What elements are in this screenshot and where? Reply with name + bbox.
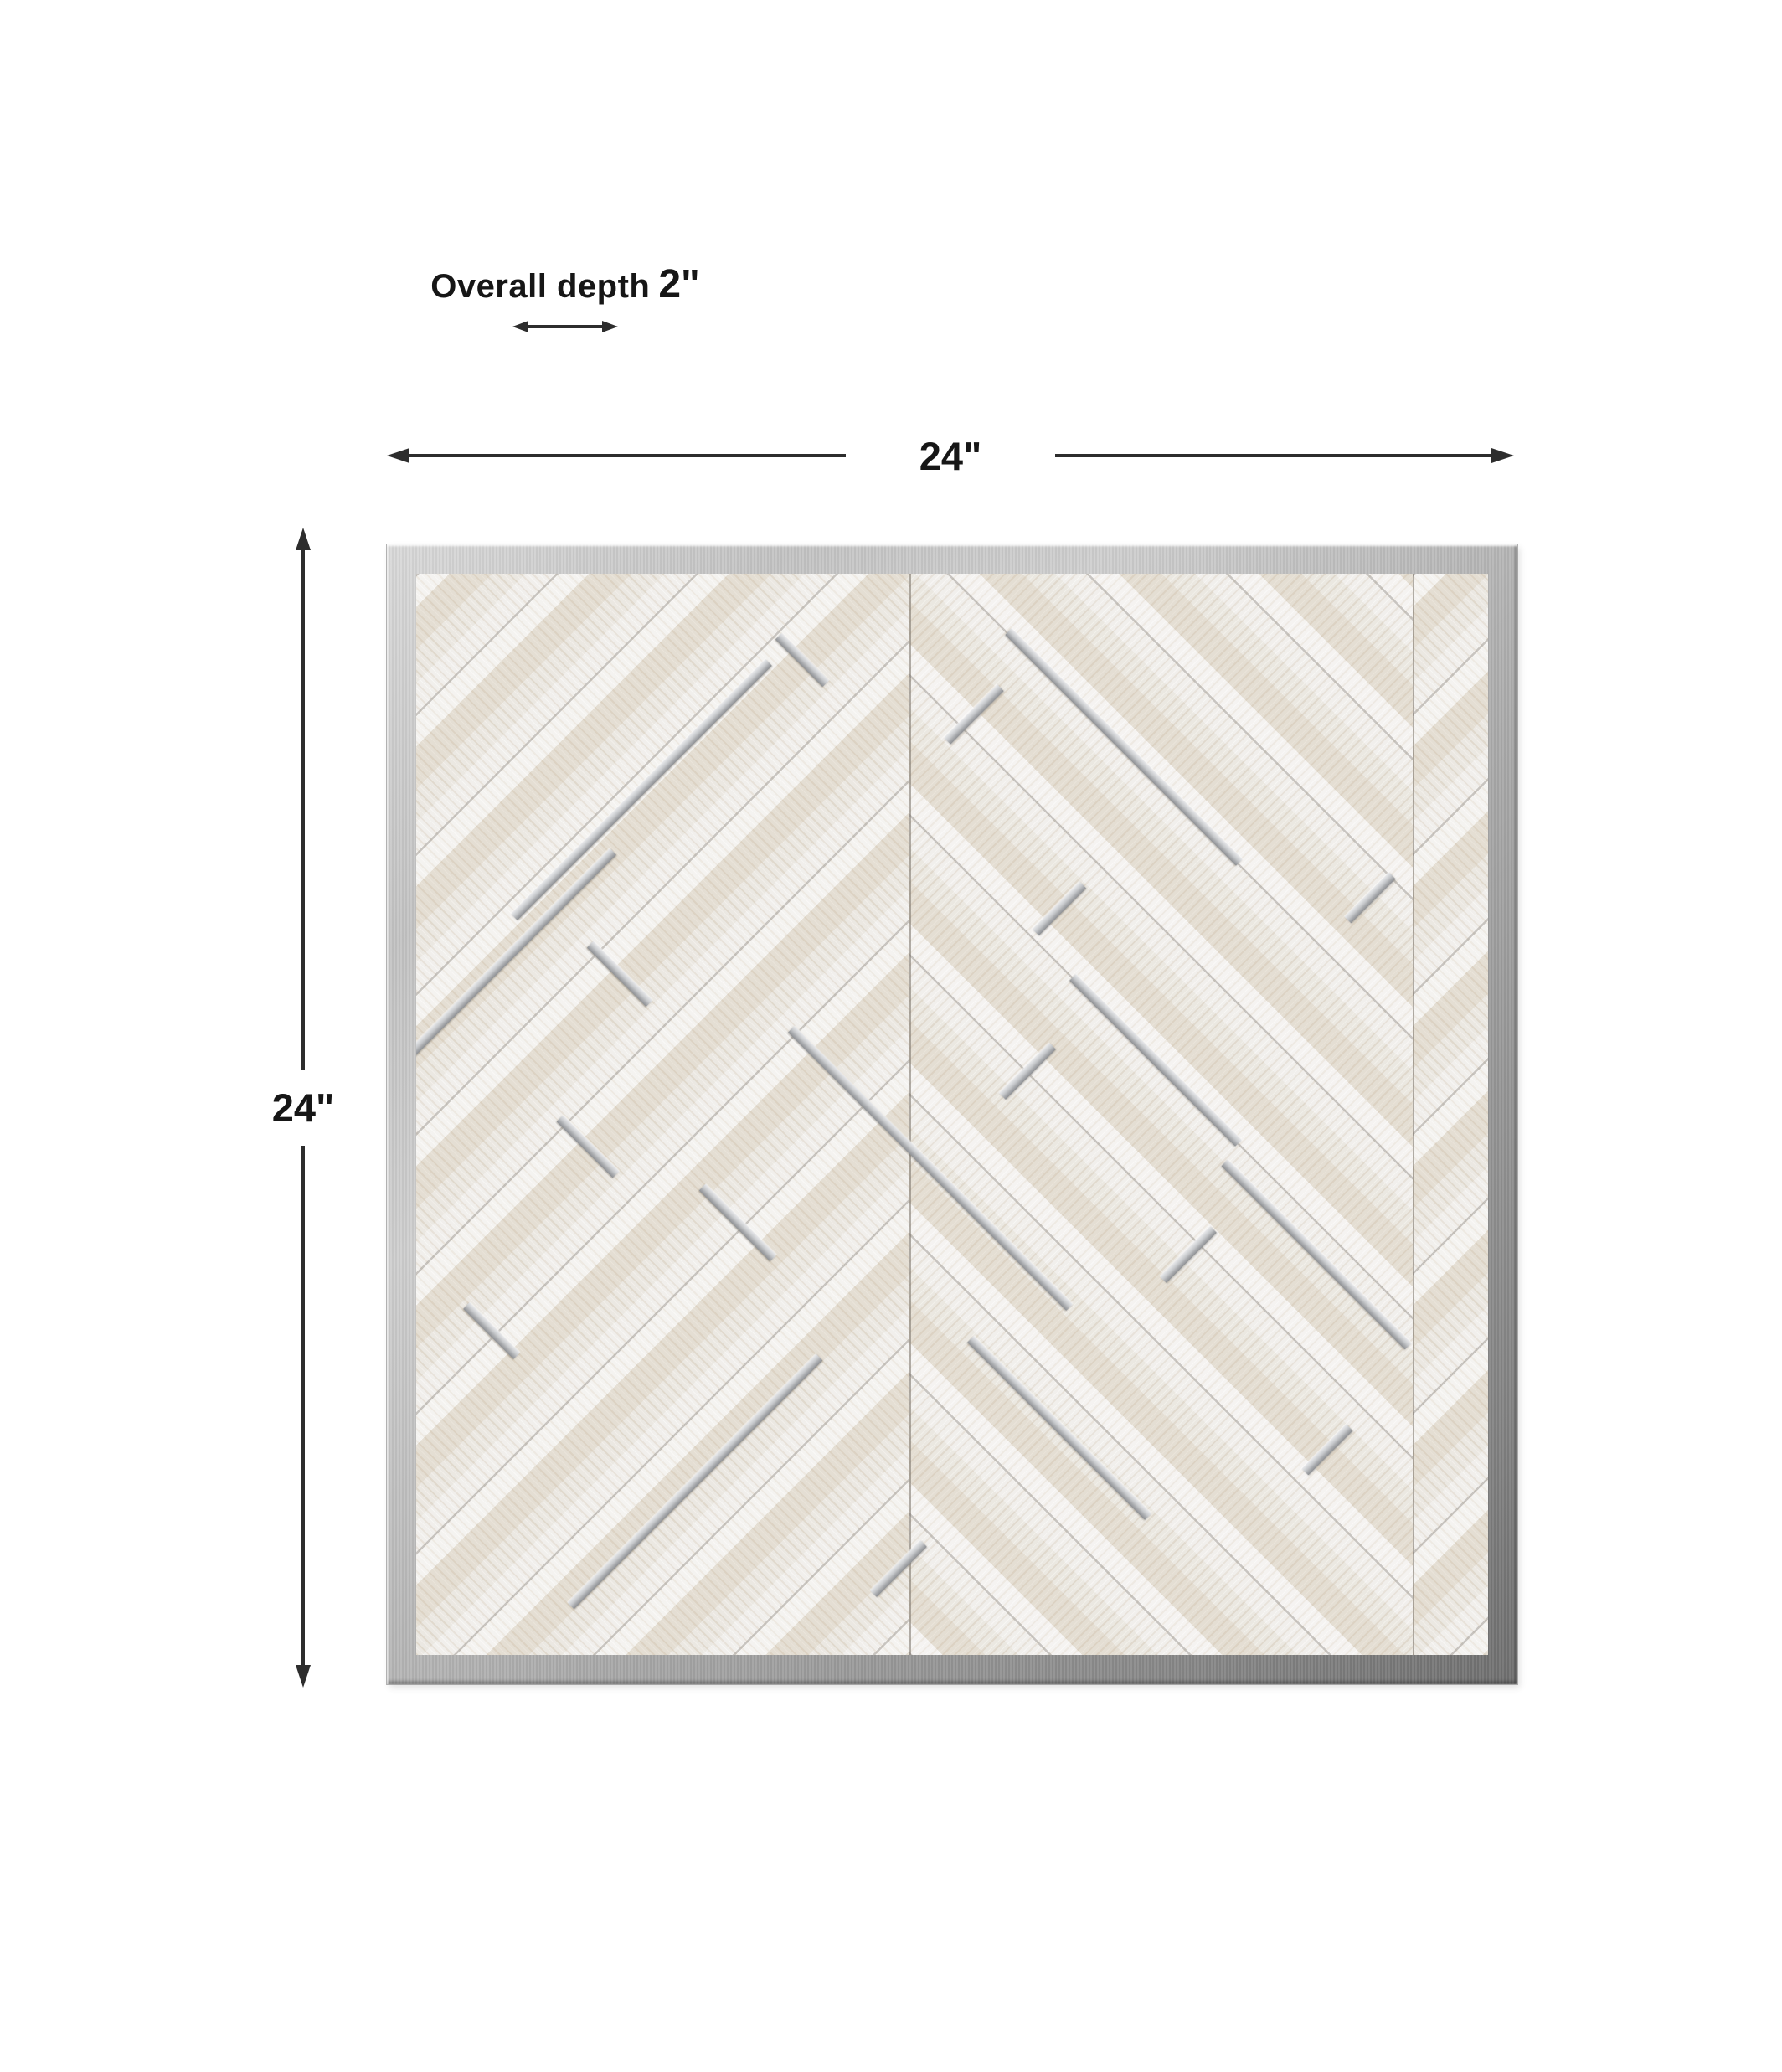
depth-value: 2" bbox=[658, 262, 699, 307]
arrow-right-icon bbox=[602, 321, 618, 332]
depth-label: Overall depth bbox=[430, 268, 650, 305]
herringbone-spine bbox=[1413, 574, 1414, 1655]
arrow-down-icon bbox=[296, 1665, 311, 1688]
arrow-up-icon bbox=[296, 528, 311, 550]
arrow-right-icon bbox=[1491, 448, 1514, 463]
width-dimension: 24" bbox=[387, 436, 1514, 475]
arrow-line bbox=[528, 325, 602, 328]
plank-column-middle bbox=[909, 574, 1414, 1655]
herringbone-wood-art bbox=[416, 574, 1488, 1655]
plank-column-right bbox=[1413, 574, 1488, 1655]
dimension-line bbox=[409, 454, 846, 457]
width-value: 24" bbox=[846, 436, 1056, 476]
dimension-line bbox=[1055, 454, 1491, 457]
arrow-left-icon bbox=[387, 448, 409, 463]
depth-arrow-icon bbox=[512, 321, 618, 332]
height-value: 24" bbox=[272, 1088, 335, 1127]
plank-column-left bbox=[416, 574, 909, 1655]
product-dimension-diagram: Overall depth2" 24" 24" bbox=[0, 0, 1782, 2072]
dimension-line bbox=[301, 1146, 305, 1665]
herringbone-spine bbox=[909, 574, 911, 1655]
height-dimension: 24" bbox=[265, 528, 342, 1688]
dimension-line bbox=[301, 550, 305, 1070]
arrow-left-icon bbox=[512, 321, 528, 332]
depth-annotation: Overall depth2" bbox=[415, 261, 716, 332]
wall-panel-frame bbox=[387, 544, 1517, 1684]
